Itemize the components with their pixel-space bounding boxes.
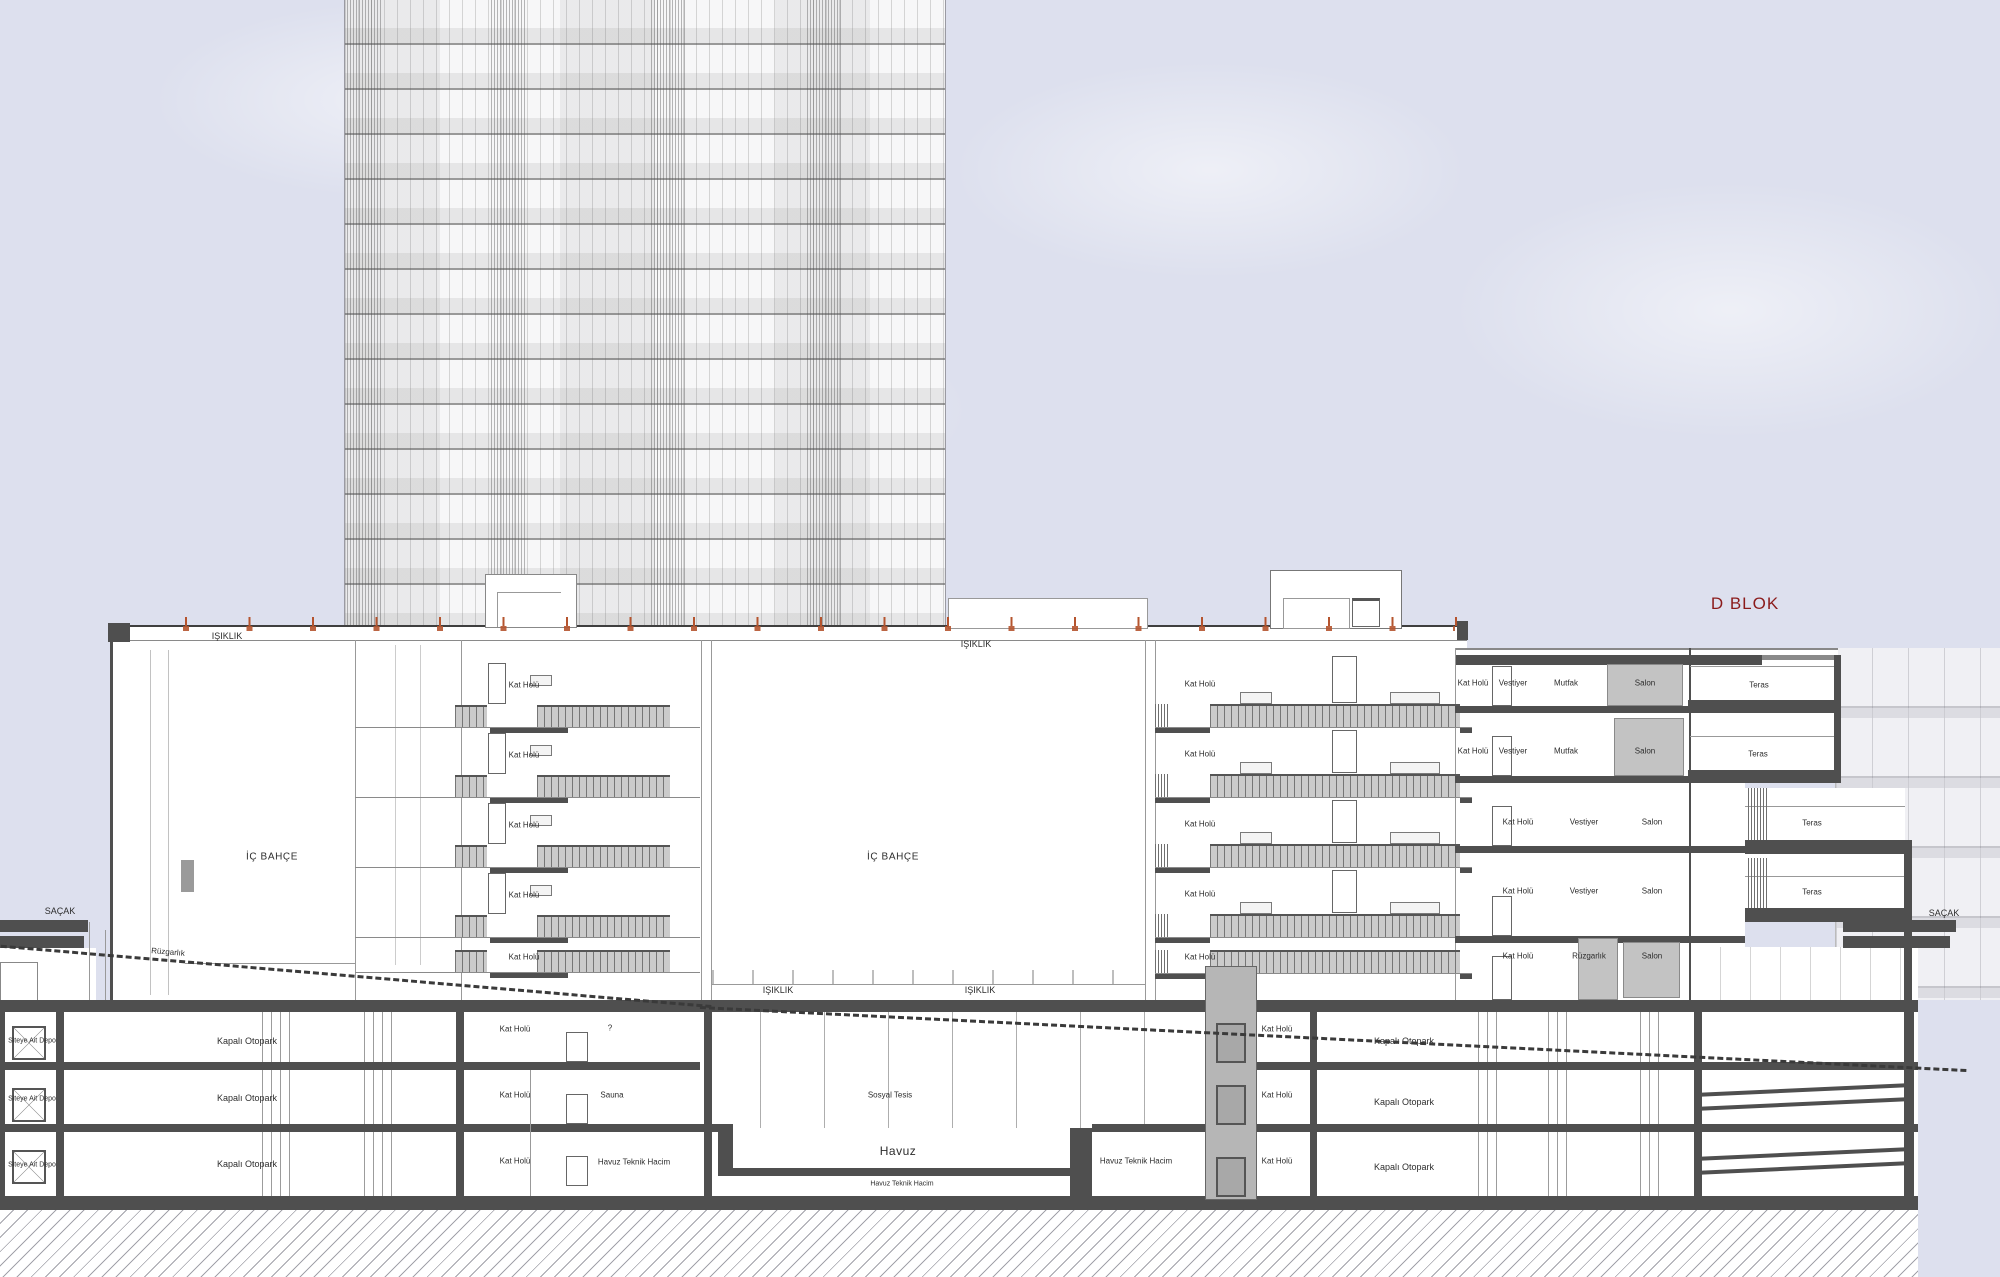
room-label-teras: Teras bbox=[1749, 681, 1769, 690]
door bbox=[488, 803, 506, 844]
core-floor: Kat Holü bbox=[1155, 867, 1472, 937]
room-label-kat-holu: Kat Holü bbox=[509, 821, 540, 830]
salon-window-box bbox=[1623, 942, 1680, 998]
room-label-teras: Teras bbox=[1802, 819, 1822, 828]
room-label-salon: Salon bbox=[1635, 679, 1655, 688]
balcony-railing bbox=[1210, 704, 1460, 727]
ground-hatch bbox=[0, 1210, 1918, 1277]
balcony-railing bbox=[455, 705, 487, 727]
floor-slab bbox=[1455, 706, 1690, 713]
room-label-havuz-teknik: Havuz Teknik Hacim bbox=[598, 1158, 670, 1167]
terrace-slab bbox=[1688, 700, 1840, 713]
louver-strip bbox=[1155, 844, 1168, 867]
roof-anchor-bases bbox=[183, 626, 1455, 631]
podium-left-wall bbox=[110, 625, 113, 1000]
room-label-sauna: Sauna bbox=[600, 1091, 623, 1100]
core-floor: Kat Holü bbox=[355, 727, 700, 797]
terrace-railing-line bbox=[1745, 806, 1905, 807]
room-label-kat-holu: Kat Holü bbox=[1185, 820, 1216, 829]
room-label-otopark: Kapalı Otopark bbox=[217, 1036, 277, 1046]
tower-louver-strip bbox=[651, 0, 685, 634]
room-label-kat-holu: Kat Holü bbox=[509, 681, 540, 690]
balcony-railing bbox=[1210, 914, 1460, 937]
room-label-teras: Teras bbox=[1802, 888, 1822, 897]
courtyard-column-row bbox=[712, 970, 1145, 984]
door bbox=[1332, 730, 1357, 773]
window bbox=[1240, 762, 1272, 774]
courtyard-elevator-block bbox=[181, 860, 194, 892]
door bbox=[488, 733, 506, 774]
basement-end-wall bbox=[1904, 1010, 1914, 1210]
room-label-kat-holu: Kat Holü bbox=[500, 1157, 531, 1166]
door bbox=[566, 1094, 588, 1124]
balcony-railing bbox=[455, 845, 487, 867]
floor-slab bbox=[1455, 776, 1690, 783]
balcony-railing bbox=[537, 950, 670, 972]
basement-slab-b2 bbox=[0, 1124, 733, 1132]
parking-columns bbox=[1548, 1012, 1572, 1196]
room-label-otopark: Kapalı Otopark bbox=[1374, 1097, 1434, 1107]
room-label-otopark: Kapalı Otopark bbox=[217, 1093, 277, 1103]
tower-louver-strip bbox=[807, 0, 841, 634]
terrace-railing-line bbox=[1690, 666, 1838, 667]
floor-line bbox=[1155, 973, 1472, 974]
door bbox=[488, 663, 506, 704]
room-label-vestiyer: Vestiyer bbox=[1570, 818, 1598, 827]
sacak-eave-bar bbox=[1843, 936, 1950, 948]
sacak-eave-bar bbox=[0, 920, 88, 932]
label-sacak-right: SAÇAK bbox=[1929, 908, 1960, 918]
pool-floor-slab bbox=[733, 1168, 1070, 1176]
label-isiklik: IŞIKLIK bbox=[965, 985, 996, 995]
room-label-kat-holu: Kat Holü bbox=[500, 1091, 531, 1100]
louver-strip bbox=[1155, 704, 1168, 727]
depot-door bbox=[12, 1088, 46, 1122]
terrace-upper-white bbox=[1690, 655, 1838, 783]
room-label-salon: Salon bbox=[1635, 747, 1655, 756]
core-wall bbox=[456, 1012, 464, 1196]
room-label-vestiyer: Vestiyer bbox=[1499, 679, 1527, 688]
courtyard-wall-line bbox=[701, 640, 702, 1000]
window bbox=[1390, 762, 1440, 774]
building-section-drawing: Kat HolüKat HolüKat HolüKat HolüKat Holü… bbox=[0, 0, 2000, 1277]
balcony-railing bbox=[1210, 844, 1460, 867]
louver-strip bbox=[1748, 788, 1768, 840]
room-label-otopark: Kapalı Otopark bbox=[217, 1159, 277, 1169]
core-floor: Kat Holü bbox=[1155, 727, 1472, 797]
tower-elevation bbox=[344, 0, 946, 634]
balcony-railing bbox=[455, 950, 487, 972]
label-ic-bahce: İÇ BAHÇE bbox=[246, 852, 298, 863]
elevator-door bbox=[1216, 1085, 1246, 1125]
room-label-havuz-teknik: Havuz Teknik Hacim bbox=[870, 1181, 933, 1188]
label-isiklik: IŞIKLIK bbox=[961, 639, 992, 649]
room-label-salon: Salon bbox=[1642, 952, 1662, 961]
room-label-otopark: Kapalı Otopark bbox=[1374, 1162, 1434, 1172]
room-label-sosyal-tesis: Sosyal Tesis bbox=[868, 1091, 912, 1100]
room-label-kat-holu: Kat Holü bbox=[509, 751, 540, 760]
room-label-kat-holu: Kat Holü bbox=[1503, 952, 1534, 961]
room-label-havuz-teknik: Havuz Teknik Hacim bbox=[1100, 1157, 1172, 1166]
core-floor: Kat Holü bbox=[1155, 640, 1472, 727]
door bbox=[1492, 956, 1512, 1000]
core-floor: Kat Holü bbox=[355, 640, 700, 727]
roof-parapet-end bbox=[1457, 621, 1468, 640]
label-isiklik: IŞIKLIK bbox=[212, 631, 243, 641]
door bbox=[1492, 896, 1512, 936]
parking-columns bbox=[1640, 1012, 1664, 1196]
core-wall bbox=[704, 1012, 712, 1196]
door bbox=[566, 1032, 588, 1062]
parking-columns bbox=[364, 1012, 392, 1196]
door bbox=[566, 1156, 588, 1186]
room-label-vestiyer: Vestiyer bbox=[1570, 887, 1598, 896]
terrace-railing-line bbox=[1690, 736, 1838, 737]
ground-floor-window-band bbox=[1690, 947, 1918, 1000]
elevator-shaft bbox=[1205, 966, 1257, 1200]
block-title: D BLOK bbox=[1711, 594, 1779, 614]
balcony-railing bbox=[537, 775, 670, 797]
room-label-depo: Siteye Ait Depo bbox=[8, 1096, 56, 1103]
window bbox=[1390, 902, 1440, 914]
louver-strip bbox=[1155, 950, 1168, 973]
room-label-kat-holu: Kat Holü bbox=[500, 1025, 531, 1034]
label-isiklik: IŞIKLIK bbox=[763, 985, 794, 995]
room-label-kat-holu: Kat Holü bbox=[509, 953, 540, 962]
door bbox=[1332, 870, 1357, 913]
label-ic-bahce: İÇ BAHÇE bbox=[867, 852, 919, 863]
stair-zone-line bbox=[168, 650, 169, 995]
room-label-mutfak: Mutfak bbox=[1554, 747, 1578, 756]
ground-slab bbox=[0, 1000, 1918, 1012]
window bbox=[1240, 832, 1272, 844]
balcony-railing bbox=[537, 705, 670, 727]
door bbox=[1492, 736, 1512, 776]
room-label-kat-holu: Kat Holü bbox=[1458, 679, 1489, 688]
room-label-salon: Salon bbox=[1642, 818, 1662, 827]
left-annex-room bbox=[0, 962, 38, 1002]
room-label-teras: Teras bbox=[1748, 750, 1768, 759]
room-label-kat-holu: Kat Holü bbox=[1262, 1025, 1293, 1034]
room-label-depo: Siteye Ait Depo bbox=[8, 1162, 56, 1169]
room-label-kat-holu: Kat Holü bbox=[1185, 680, 1216, 689]
core-floor: Kat Holü bbox=[355, 867, 700, 937]
room-label-kat-holu: Kat Holü bbox=[1503, 818, 1534, 827]
courtyard-wall-line bbox=[1145, 640, 1146, 1000]
pool-wall bbox=[718, 1128, 733, 1176]
roof-parapet-corner bbox=[108, 623, 130, 642]
left-core: Kat HolüKat HolüKat HolüKat HolüKat Holü bbox=[355, 640, 700, 1000]
door bbox=[1332, 800, 1357, 843]
core-wall-line bbox=[530, 1070, 531, 1196]
louver-strip bbox=[1155, 914, 1168, 937]
door bbox=[1332, 656, 1357, 703]
room-label-kat-holu: Kat Holü bbox=[1503, 887, 1534, 896]
room-label-mutfak: Mutfak bbox=[1554, 679, 1578, 688]
door bbox=[488, 873, 506, 914]
post-line bbox=[105, 930, 106, 1000]
right-block-roof-slab-thin bbox=[1762, 655, 1838, 660]
room-label-kat-holu: Kat Holü bbox=[1185, 953, 1216, 962]
parking-columns bbox=[1478, 1012, 1502, 1196]
room-label-depo: Siteye Ait Depo bbox=[8, 1038, 56, 1045]
room-label-unknown: ? bbox=[608, 1024, 612, 1033]
cloud bbox=[1450, 180, 2000, 440]
sacak-eave-bar bbox=[1843, 920, 1956, 932]
roof-anchor-posts bbox=[185, 617, 1457, 626]
room-label-ruzgarlik: Rüzgarlık bbox=[1572, 952, 1606, 961]
window bbox=[1390, 692, 1440, 704]
room-label-kat-holu: Kat Holü bbox=[1185, 890, 1216, 899]
elevator-door bbox=[1216, 1023, 1246, 1063]
cloud bbox=[950, 60, 1470, 280]
room-label-vestiyer: Vestiyer bbox=[1499, 747, 1527, 756]
room-label-kat-holu: Kat Holü bbox=[1458, 747, 1489, 756]
pool-wall bbox=[1070, 1128, 1092, 1203]
depot-outer-wall bbox=[0, 1012, 5, 1210]
basement-bottom-slab bbox=[0, 1196, 1918, 1210]
courtyard-wall-line bbox=[711, 640, 712, 1000]
core-floor: Kat Holü bbox=[1155, 937, 1472, 1000]
terrace-railing-line bbox=[1745, 876, 1905, 877]
balcony-railing bbox=[1210, 774, 1460, 797]
basement-wall bbox=[1694, 1012, 1702, 1210]
terrace-slab bbox=[1745, 840, 1912, 854]
core-floor: Kat Holü bbox=[355, 797, 700, 867]
balcony-railing bbox=[537, 845, 670, 867]
room-label-kat-holu: Kat Holü bbox=[509, 891, 540, 900]
tower-louver-strip bbox=[491, 0, 525, 634]
label-sacak-left: SAÇAK bbox=[45, 906, 76, 916]
terrace-end-wall bbox=[1834, 655, 1841, 783]
window bbox=[1240, 692, 1272, 704]
balcony-railing bbox=[455, 915, 487, 937]
room-label-kat-holu: Kat Holü bbox=[1262, 1157, 1293, 1166]
louver-strip bbox=[1748, 858, 1768, 908]
room-label-salon: Salon bbox=[1642, 887, 1662, 896]
stair-zone-line bbox=[150, 650, 151, 995]
post-line bbox=[89, 922, 90, 1000]
core-floor: Kat Holü bbox=[1155, 797, 1472, 867]
window bbox=[1390, 832, 1440, 844]
depot-wall bbox=[56, 1012, 64, 1196]
right-core: Kat HolüKat HolüKat HolüKat HolüKat Holü bbox=[1155, 640, 1472, 1000]
basement-slab-b1 bbox=[0, 1062, 700, 1070]
louver-strip bbox=[1155, 774, 1168, 797]
tower-louver-strip bbox=[347, 0, 381, 634]
floor-slab bbox=[1455, 846, 1745, 853]
elevator-door bbox=[1216, 1157, 1246, 1197]
terrace-slab bbox=[1688, 770, 1840, 783]
balcony-railing bbox=[455, 775, 487, 797]
vestibule-box bbox=[1578, 938, 1618, 1000]
floor-line bbox=[355, 972, 700, 973]
room-label-kat-holu: Kat Holü bbox=[1185, 750, 1216, 759]
room-label-havuz: Havuz bbox=[880, 1144, 917, 1158]
balcony-railing bbox=[537, 915, 670, 937]
room-label-kat-holu: Kat Holü bbox=[1262, 1091, 1293, 1100]
window bbox=[1240, 902, 1272, 914]
